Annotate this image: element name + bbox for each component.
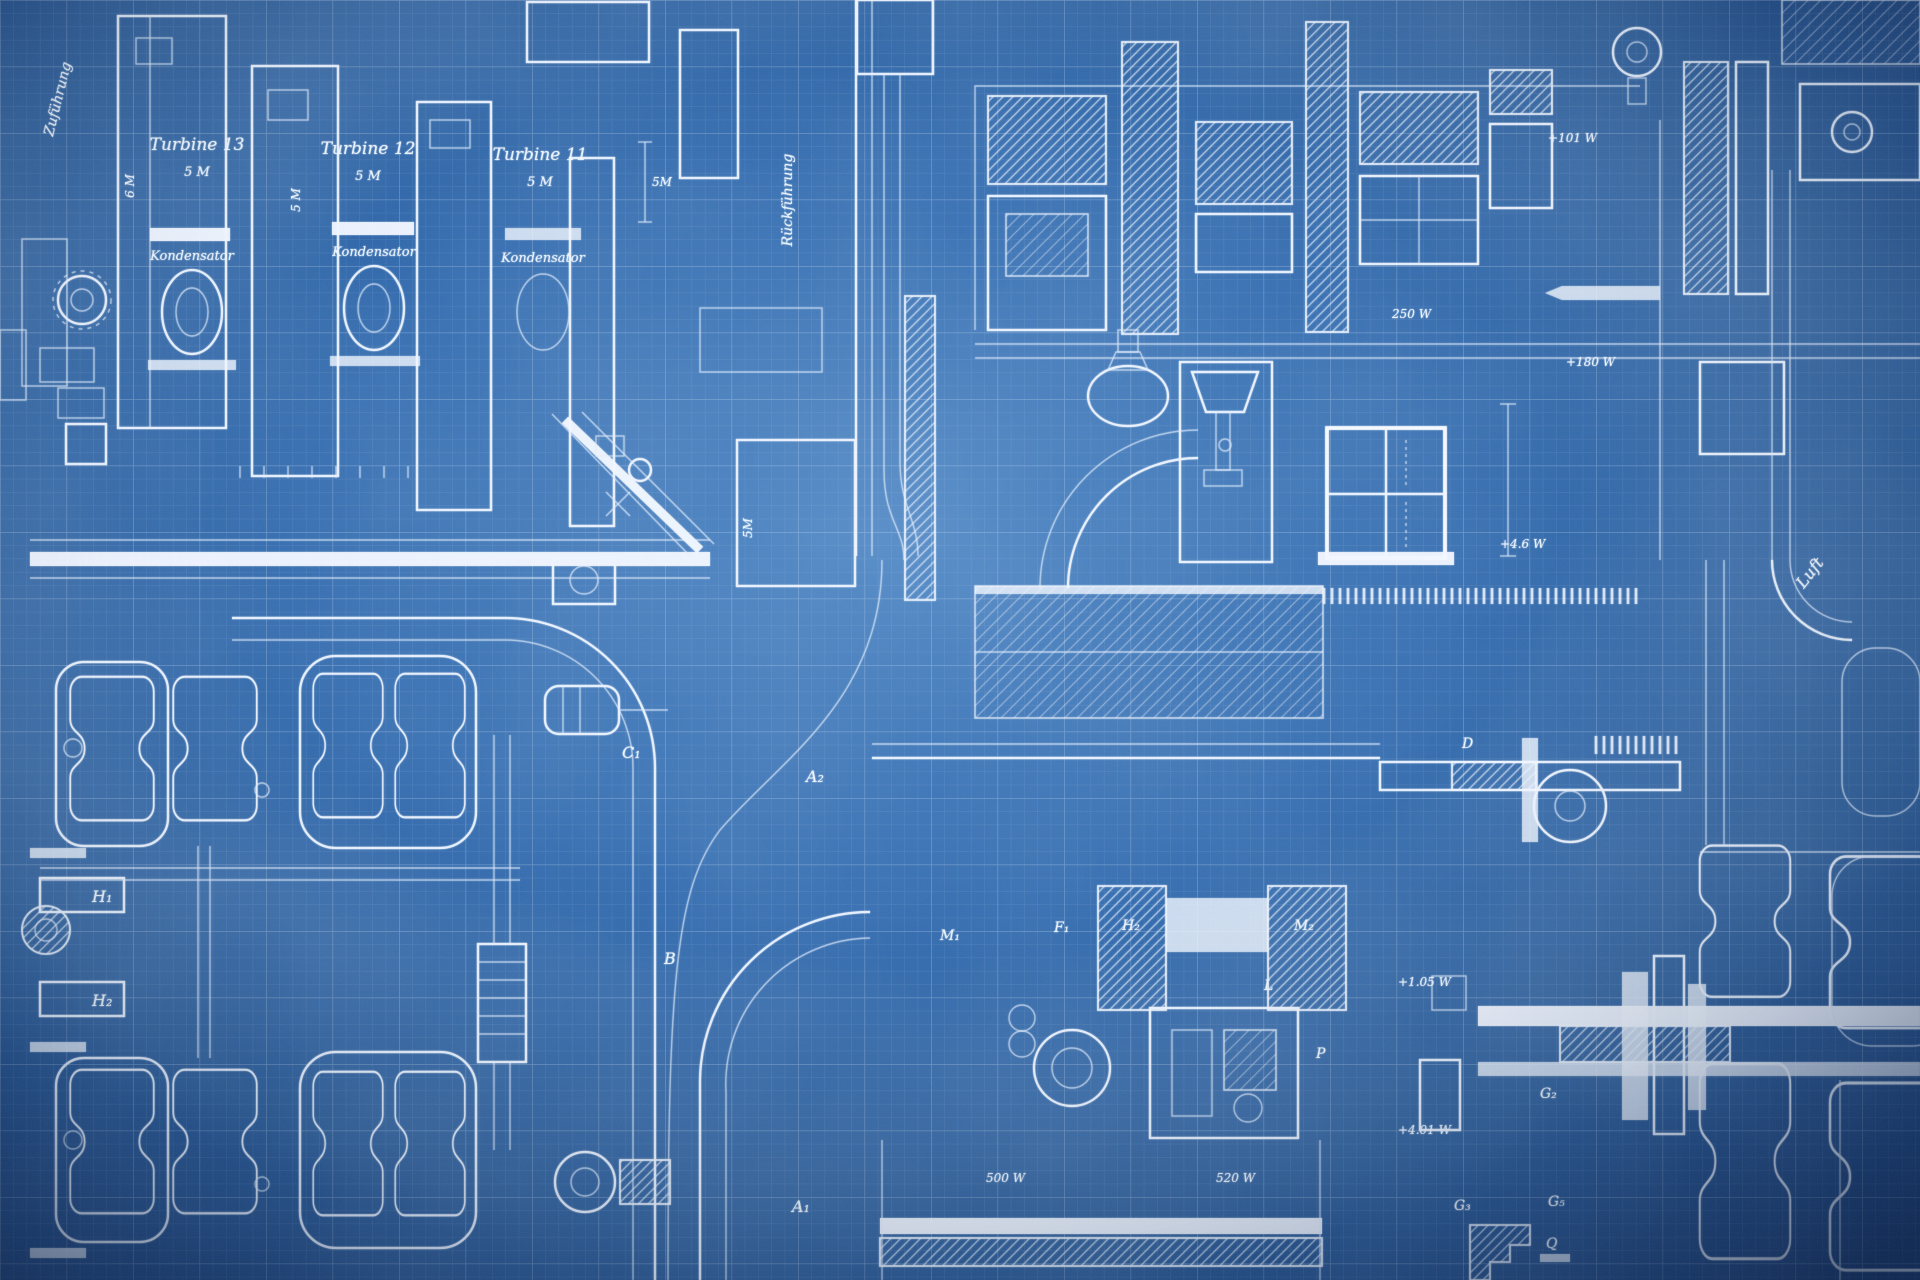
blueprint-canvas: Turbine 13 5 M Turbine 12 5 M Turbine 11… bbox=[0, 0, 1920, 1280]
paper-grain bbox=[0, 0, 1920, 1280]
blueprint-page: Turbine 13 5 M Turbine 12 5 M Turbine 11… bbox=[0, 0, 1920, 1280]
